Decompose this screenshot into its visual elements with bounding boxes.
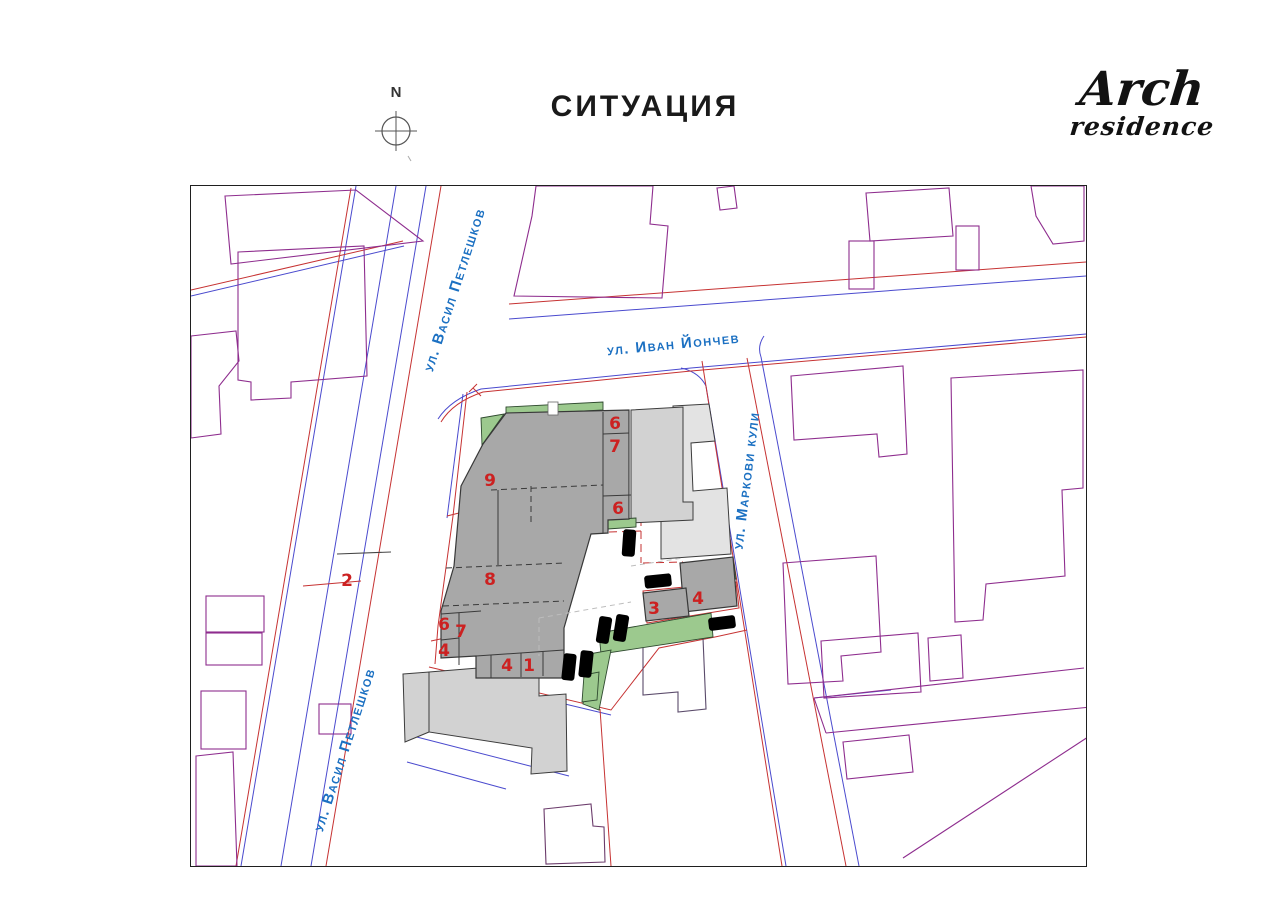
car-icon (622, 529, 637, 557)
building-number: 4 (438, 641, 450, 661)
street-edge-lines (191, 186, 1086, 866)
street-label-markovi-kuli: ул. Маркови кули (730, 411, 764, 551)
street-label-ivan-yonchev: ул. Иван Йончев (606, 329, 741, 360)
building-number: 6 (438, 615, 450, 635)
brand-logo: Arch residence (1062, 66, 1222, 140)
site-plan-drawing: ул. Васил Петлешков ул. Васил Петлешков … (191, 186, 1086, 866)
page-title: СИТУАЦИЯ (450, 90, 840, 124)
building-number: 3 (648, 599, 660, 619)
parcel-red-lines (191, 186, 1086, 866)
compass-icon (368, 103, 424, 165)
site-plan-map: ул. Васил Петлешков ул. Васил Петлешков … (190, 185, 1087, 867)
neighbor-buildings (191, 186, 1086, 866)
brand-logo-line1: Arch (1059, 66, 1224, 114)
north-label: N (368, 84, 424, 101)
building-number: 2 (341, 571, 353, 591)
car-icon (708, 615, 736, 631)
building-number: 7 (609, 437, 621, 457)
building-number: 7 (455, 622, 467, 642)
street-label-vasil-petleshkov-top: ул. Васил Петлешков (420, 206, 489, 374)
building-number: 9 (484, 471, 496, 491)
car-icon (644, 573, 672, 589)
building-block-4r (680, 557, 737, 612)
building-number: 4 (692, 589, 704, 609)
north-indicator: N (368, 84, 424, 170)
brand-logo-line2: residence (1061, 114, 1224, 140)
street-label-vasil-petleshkov-bottom: ул. Васил Петлешков (310, 666, 379, 834)
site-plan-page: { "page": { "title": "СИТУАЦИЯ", "north_… (0, 0, 1280, 905)
building-number: 6 (609, 414, 621, 434)
building-number: 8 (484, 570, 496, 590)
building-number: 4 (501, 656, 513, 676)
building-number: 6 (612, 499, 624, 519)
building-number: 1 (523, 656, 535, 676)
